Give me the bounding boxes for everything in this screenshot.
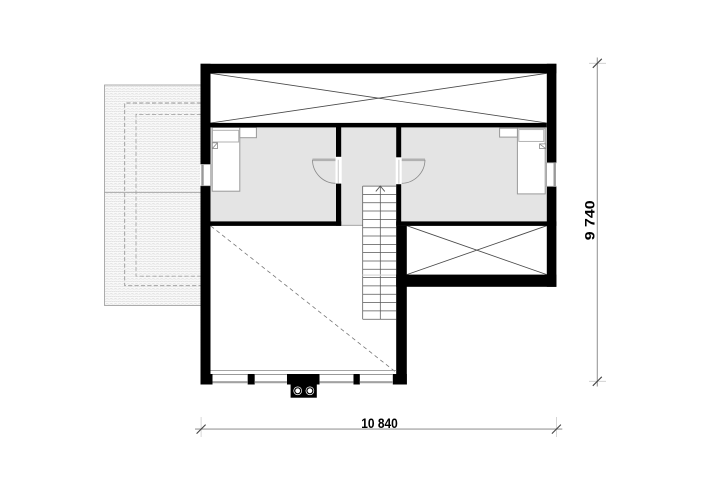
svg-text:9 740: 9 740 [583, 200, 598, 240]
svg-text:10 840: 10 840 [361, 416, 398, 431]
